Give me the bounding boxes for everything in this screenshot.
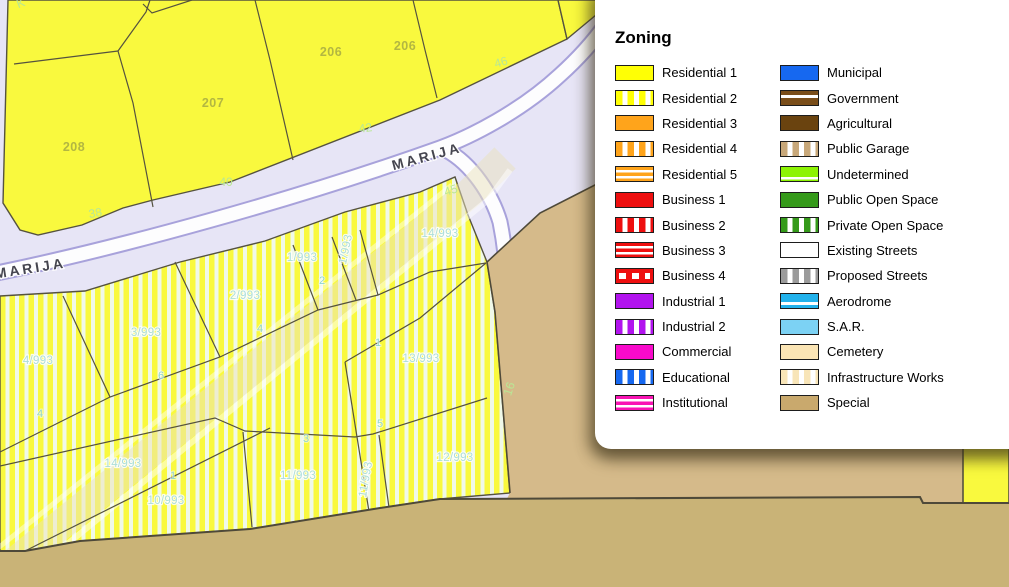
legend-swatch [780,115,819,131]
legend-swatch [780,217,819,233]
legend-item: Industrial 2 [615,314,780,339]
map-label: 1/993 [287,252,317,264]
map-label: 10/993 [148,495,185,507]
map-label: 40 [219,175,233,189]
map-label: 14/993 [422,228,459,240]
legend-item: Commercial [615,339,780,364]
map-label: 3/993 [131,327,161,339]
legend-columns: Residential 1Residential 2Residential 3R… [615,60,1009,415]
legend-swatch [780,141,819,157]
legend-item: Residential 3 [615,111,780,136]
legend-item-label: Government [827,91,899,106]
legend-swatch [780,65,819,81]
map-label: 206 [394,39,416,53]
legend-item-label: Agricultural [827,116,892,131]
legend-item-label: Public Garage [827,141,909,156]
legend-column: MunicipalGovernmentAgriculturalPublic Ga… [780,60,1009,415]
legend-item: Undetermined [780,162,1009,187]
legend-swatch [615,192,654,208]
legend-item: Cemetery [780,339,1009,364]
legend-item: Business 2 [615,212,780,237]
legend-item: Government [780,85,1009,110]
legend-item: Public Garage [780,136,1009,161]
legend-swatch [615,166,654,182]
map-label: 5 [377,418,383,430]
legend-swatch [780,268,819,284]
legend-item: Aerodrome [780,289,1009,314]
map-label: 1 [375,337,381,349]
legend-swatch [615,395,654,411]
legend-item-label: Cemetery [827,344,883,359]
legend-item: Proposed Streets [780,263,1009,288]
legend-item-label: Public Open Space [827,192,938,207]
legend-swatch [780,90,819,106]
map-label: 1 [170,470,176,482]
legend-item-label: Residential 5 [662,167,737,182]
map-label: 4/993 [23,355,53,367]
map-label: 42 [358,120,373,136]
map-label: 3 [303,433,309,445]
legend-item: Educational [615,365,780,390]
map-label: 14/993 [105,458,142,470]
map-label: 206 [320,45,342,59]
map-label: 4 [37,408,43,420]
map-label: 208 [63,140,85,154]
legend-swatch [780,319,819,335]
legend-swatch [615,217,654,233]
legend-item: Residential 4 [615,136,780,161]
legend-swatch [780,369,819,385]
legend-swatch [780,344,819,360]
legend-item-label: Business 2 [662,218,726,233]
legend-item-label: Proposed Streets [827,268,927,283]
legend-column: Residential 1Residential 2Residential 3R… [615,60,780,415]
legend-swatch [780,166,819,182]
legend-item-label: Educational [662,370,730,385]
legend-item: Private Open Space [780,212,1009,237]
legend-item: Institutional [615,390,780,415]
map-label: 4 [257,323,263,335]
legend-item-label: Aerodrome [827,294,891,309]
legend-item-label: Business 4 [662,268,726,283]
legend-item: Infrastructure Works [780,365,1009,390]
legend-title: Zoning [615,28,1009,48]
legend-item-label: Undetermined [827,167,909,182]
legend-swatch [615,268,654,284]
legend-swatch [615,319,654,335]
legend-item-label: Industrial 2 [662,319,726,334]
map-label: 12/993 [437,452,474,464]
legend-item: Business 3 [615,238,780,263]
legend-swatch [780,293,819,309]
legend-swatch [780,192,819,208]
legend-item: Public Open Space [780,187,1009,212]
legend-panel: Zoning Residential 1Residential 2Residen… [595,0,1009,449]
legend-item-label: Residential 3 [662,116,737,131]
legend-item: Business 4 [615,263,780,288]
map-label: 38 [88,205,104,221]
legend-item-label: Residential 1 [662,65,737,80]
legend-item: Residential 5 [615,162,780,187]
legend-item-label: Residential 2 [662,91,737,106]
legend-swatch [615,115,654,131]
legend-swatch [780,395,819,411]
legend-item-label: S.A.R. [827,319,865,334]
legend-swatch [615,141,654,157]
legend-item: Existing Streets [780,238,1009,263]
legend-item-label: Private Open Space [827,218,943,233]
legend-item: Residential 1 [615,60,780,85]
legend-swatch [615,293,654,309]
legend-swatch [615,65,654,81]
map-label: 2 [319,275,325,287]
legend-swatch [780,242,819,258]
legend-item-label: Industrial 1 [662,294,726,309]
legend-item: Special [780,390,1009,415]
legend-item: Agricultural [780,111,1009,136]
legend-item-label: Existing Streets [827,243,917,258]
legend-swatch [615,90,654,106]
map-label: 2/993 [230,290,260,302]
map-label: 207 [202,96,224,110]
legend-item: Residential 2 [615,85,780,110]
map-label: 6 [158,370,164,382]
legend-item-label: Commercial [662,344,731,359]
legend-swatch [615,369,654,385]
legend-item-label: Business 3 [662,243,726,258]
legend-item-label: Infrastructure Works [827,370,944,385]
legend-item: Municipal [780,60,1009,85]
map-label: 13/993 [403,353,440,365]
legend-item-label: Municipal [827,65,882,80]
zoning-map-app: { "legend": { "title": "Zoning", "column… [0,0,1009,587]
legend-item: Industrial 1 [615,289,780,314]
legend-item-label: Institutional [662,395,728,410]
legend-item-label: Residential 4 [662,141,737,156]
legend-item-label: Special [827,395,870,410]
map-label: 11/993 [280,470,316,482]
legend-swatch [615,242,654,258]
legend-item: S.A.R. [780,314,1009,339]
legend-item-label: Business 1 [662,192,726,207]
legend-swatch [615,344,654,360]
legend-item: Business 1 [615,187,780,212]
